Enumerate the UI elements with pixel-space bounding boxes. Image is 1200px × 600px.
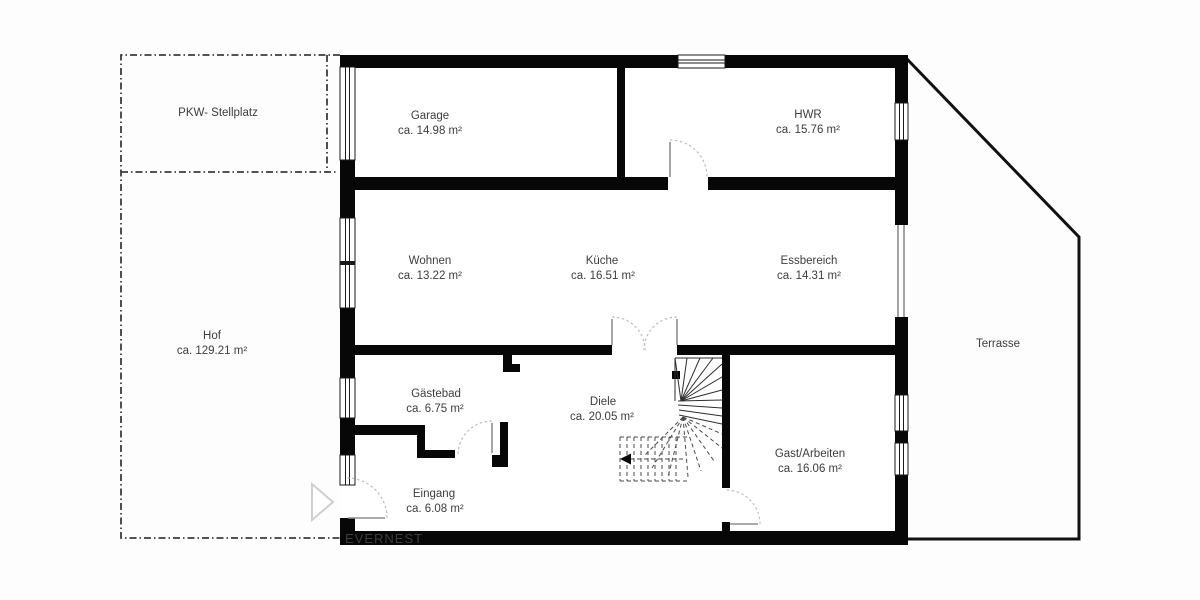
room-area-gast-arbeiten: ca. 16.06 m² bbox=[778, 463, 842, 475]
wall-gaestebad bbox=[355, 425, 425, 435]
room-area-kueche: ca. 16.51 m² bbox=[571, 270, 635, 282]
room-label-pkw-stellplatz: PKW- Stellplatz bbox=[178, 107, 258, 119]
gaestebad-window bbox=[340, 378, 355, 418]
room-area-hwr: ca. 15.76 m² bbox=[776, 124, 840, 136]
wall-left bbox=[340, 518, 355, 531]
garage-door-window bbox=[340, 67, 355, 160]
wall-gaestebad bbox=[417, 450, 455, 458]
wall-left bbox=[340, 418, 355, 455]
wall-right bbox=[895, 317, 908, 395]
wall-diele-gast-stub bbox=[722, 522, 730, 531]
stair-newel-post bbox=[672, 371, 680, 379]
wall-right bbox=[895, 431, 908, 443]
wall-stub-foot bbox=[503, 364, 520, 372]
room-area-gaestebad: ca. 6.75 m² bbox=[406, 403, 464, 415]
wall-left bbox=[340, 55, 355, 67]
room-area-diele: ca. 20.05 m² bbox=[570, 411, 634, 423]
room-label-kueche: Küche bbox=[586, 255, 619, 267]
room-area-essbereich: ca. 14.31 m² bbox=[777, 270, 841, 282]
gast-window-lower bbox=[895, 443, 908, 475]
hwr-right-window bbox=[895, 103, 908, 140]
wall-top-right-segment bbox=[725, 55, 908, 68]
gast-window-upper bbox=[895, 395, 908, 431]
wall-right bbox=[895, 55, 908, 103]
hwr-top-window bbox=[678, 55, 725, 68]
room-label-hwr: HWR bbox=[794, 109, 821, 121]
room-label-eingang: Eingang bbox=[413, 488, 455, 500]
room-label-essbereich: Essbereich bbox=[781, 255, 838, 267]
wall-diele-gast bbox=[722, 355, 730, 488]
wall-upper-horizontal bbox=[340, 177, 668, 190]
eingang-window bbox=[340, 455, 355, 485]
room-label-hof: Hof bbox=[203, 330, 222, 342]
wall-gaestebad-stub bbox=[492, 455, 507, 467]
floor-plan-canvas: PKW- Stellplatz Garage ca. 14.98 m² HWR … bbox=[0, 0, 1200, 600]
wall-garage-hwr bbox=[617, 68, 625, 177]
room-area-eingang: ca. 6.08 m² bbox=[406, 503, 464, 515]
room-area-hof: ca. 129.21 m² bbox=[177, 345, 247, 357]
watermark-evernest: EVERNEST bbox=[345, 531, 423, 546]
terrace-glass-door bbox=[895, 225, 908, 317]
room-label-gaestebad: Gästebad bbox=[411, 388, 461, 400]
room-label-garage: Garage bbox=[411, 110, 449, 122]
wall-right bbox=[895, 475, 908, 531]
wall-middle-horizontal bbox=[340, 345, 612, 355]
floor-plan-page: PKW- Stellplatz Garage ca. 14.98 m² HWR … bbox=[0, 0, 1200, 600]
wall-left bbox=[340, 307, 355, 378]
wall-middle-horizontal bbox=[677, 345, 908, 355]
room-area-wohnen: ca. 13.22 m² bbox=[398, 270, 462, 282]
wohnen-window bbox=[340, 218, 355, 308]
wall-bottom bbox=[340, 531, 908, 545]
room-area-garage: ca. 14.98 m² bbox=[398, 125, 462, 137]
room-label-wohnen: Wohnen bbox=[409, 255, 452, 267]
room-label-terrasse: Terrasse bbox=[976, 338, 1020, 350]
wall-upper-horizontal bbox=[708, 177, 908, 190]
wall-top-left-segment bbox=[340, 55, 678, 68]
room-label-diele: Diele bbox=[590, 396, 616, 408]
room-label-gast-arbeiten: Gast/Arbeiten bbox=[775, 448, 845, 460]
